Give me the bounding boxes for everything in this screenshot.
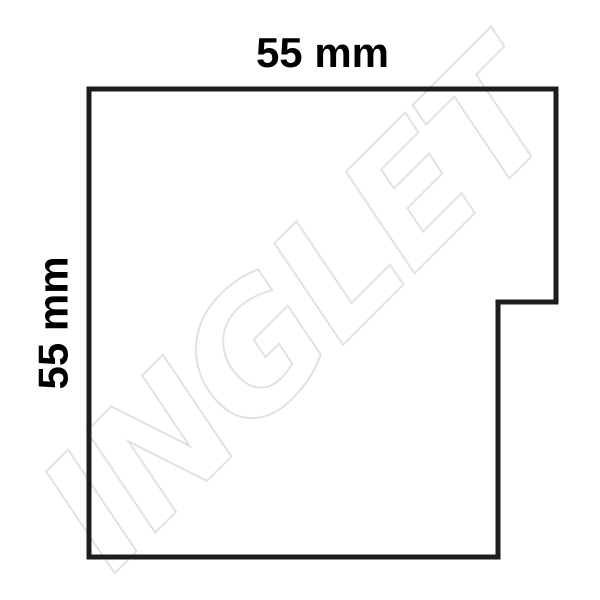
width-dimension-label: 55 mm [89,32,556,74]
height-dimension-label: 55 mm [24,89,84,557]
technical-drawing: INGLET [0,0,600,600]
height-dimension-text: 55 mm [33,256,75,389]
diagram-canvas: INGLET 55 mm 55 mm [0,0,600,600]
